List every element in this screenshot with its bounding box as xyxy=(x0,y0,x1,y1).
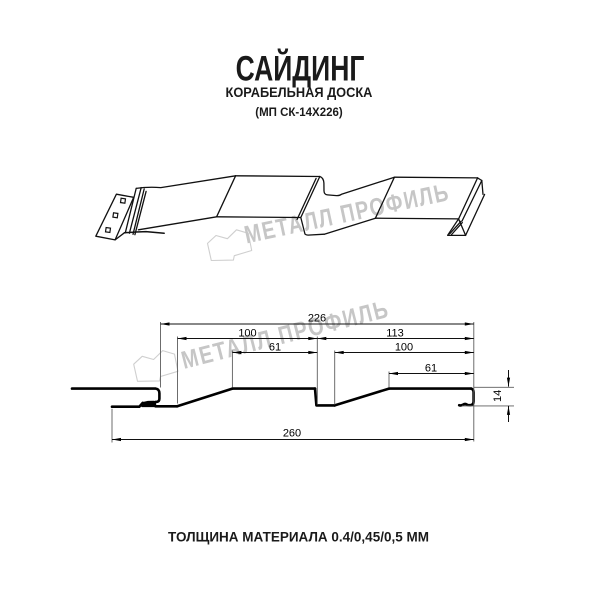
svg-text:КОРАБЕЛЬНАЯ ДОСКА: КОРАБЕЛЬНАЯ ДОСКА xyxy=(226,84,373,100)
svg-text:100: 100 xyxy=(238,327,256,339)
svg-text:САЙДИНГ: САЙДИНГ xyxy=(236,48,365,89)
svg-text:ТОЛЩИНА МАТЕРИАЛА 0.4/0,45/0,5: ТОЛЩИНА МАТЕРИАЛА 0.4/0,45/0,5 ММ xyxy=(168,529,429,544)
svg-text:260: 260 xyxy=(283,428,301,440)
svg-text:113: 113 xyxy=(386,327,404,339)
svg-text:226: 226 xyxy=(308,312,326,324)
svg-text:14: 14 xyxy=(492,390,504,402)
svg-text:100: 100 xyxy=(395,341,413,353)
svg-text:61: 61 xyxy=(269,341,281,353)
svg-text:61: 61 xyxy=(425,362,437,374)
svg-text:(МП СК-14Х226): (МП СК-14Х226) xyxy=(255,107,343,119)
